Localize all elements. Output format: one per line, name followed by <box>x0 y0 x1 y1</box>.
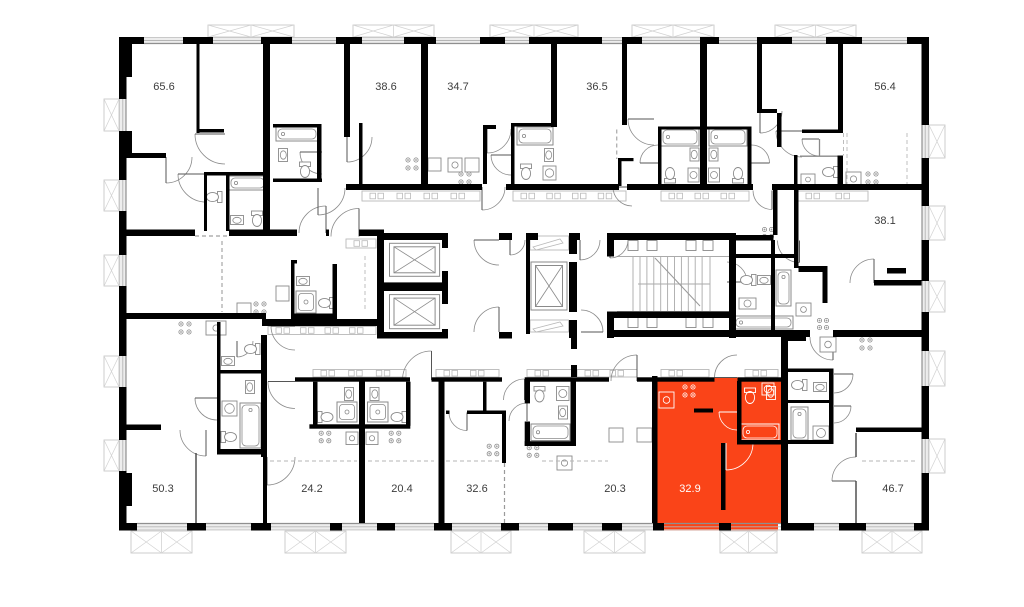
svg-text:50.3: 50.3 <box>152 483 173 495</box>
svg-text:38.1: 38.1 <box>874 215 895 227</box>
svg-text:32.6: 32.6 <box>466 483 487 495</box>
svg-text:56.4: 56.4 <box>874 81 895 93</box>
svg-text:46.7: 46.7 <box>882 483 903 495</box>
svg-text:24.2: 24.2 <box>301 483 322 495</box>
svg-text:20.4: 20.4 <box>391 483 412 495</box>
svg-text:65.6: 65.6 <box>153 81 174 93</box>
svg-text:20.3: 20.3 <box>604 483 625 495</box>
svg-text:36.5: 36.5 <box>586 81 607 93</box>
svg-text:32.9: 32.9 <box>679 483 700 495</box>
svg-text:34.7: 34.7 <box>447 81 468 93</box>
svg-text:38.6: 38.6 <box>375 81 396 93</box>
